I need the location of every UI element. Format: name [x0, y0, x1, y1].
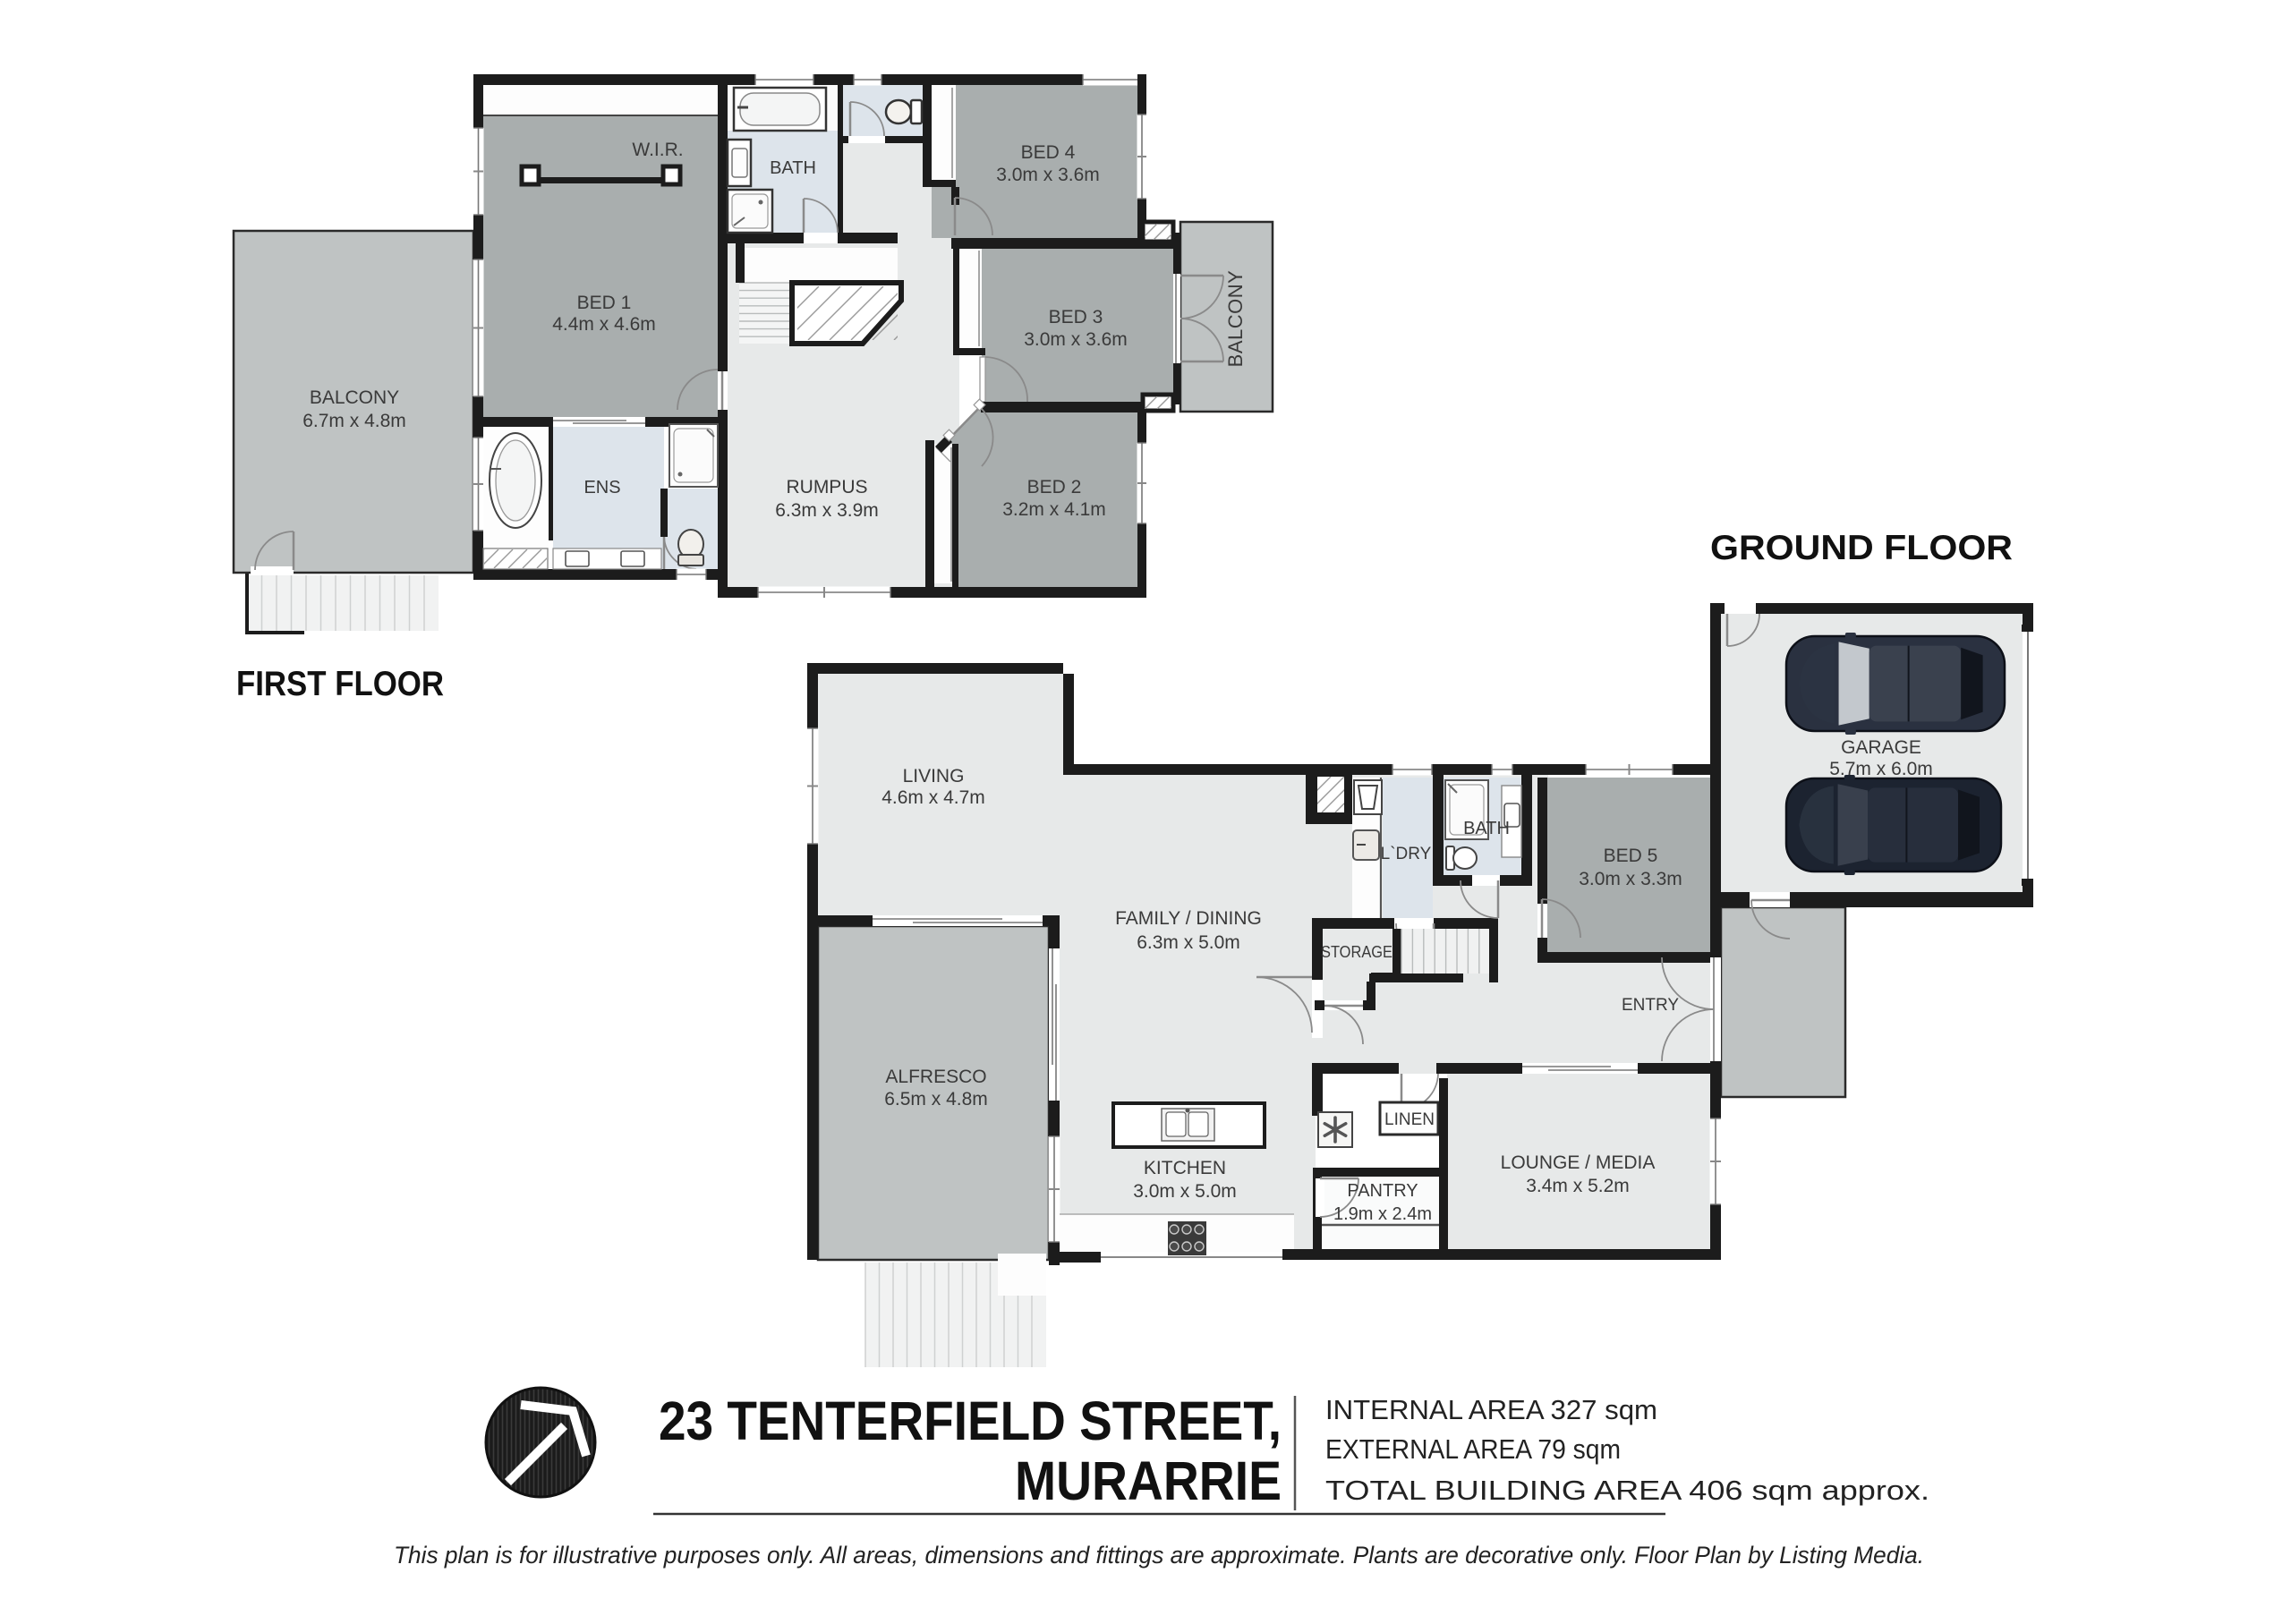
svg-text:5.7m x 6.0m: 5.7m x 6.0m [1829, 759, 1933, 779]
svg-text:BALCONY: BALCONY [1224, 270, 1247, 368]
svg-text:3.2m x 4.1m: 3.2m x 4.1m [1002, 499, 1106, 520]
svg-text:6.7m x 4.8m: 6.7m x 4.8m [302, 411, 406, 431]
svg-text:BATH: BATH [770, 158, 816, 178]
svg-text:6.3m x 5.0m: 6.3m x 5.0m [1137, 932, 1240, 953]
svg-text:This plan is for illustrative: This plan is for illustrative purposes o… [394, 1542, 1924, 1569]
svg-text:TOTAL BUILDING AREA 406 sqm ap: TOTAL BUILDING AREA 406 sqm approx. [1325, 1475, 1929, 1506]
svg-text:LIVING: LIVING [903, 766, 965, 786]
svg-text:6.3m x 3.9m: 6.3m x 3.9m [775, 500, 879, 521]
svg-text:MURARRIE: MURARRIE [1015, 1450, 1282, 1511]
svg-text:GARAGE: GARAGE [1841, 737, 1921, 758]
svg-text:3.0m x 3.3m: 3.0m x 3.3m [1579, 869, 1682, 889]
svg-text:PANTRY: PANTRY [1347, 1181, 1418, 1201]
svg-text:BED 3: BED 3 [1049, 307, 1103, 327]
svg-text:ALFRESCO: ALFRESCO [885, 1067, 986, 1087]
svg-text:GROUND FLOOR: GROUND FLOOR [1710, 529, 2013, 567]
svg-text:BED 2: BED 2 [1027, 477, 1082, 497]
svg-text:INTERNAL AREA 327 sqm: INTERNAL AREA 327 sqm [1325, 1394, 1657, 1425]
svg-text:BED 4: BED 4 [1021, 142, 1076, 163]
svg-text:ENS: ENS [583, 478, 620, 497]
svg-text:LOUNGE / MEDIA: LOUNGE / MEDIA [1501, 1152, 1656, 1173]
svg-text:23 TENTERFIELD STREET,: 23 TENTERFIELD STREET, [659, 1390, 1282, 1451]
svg-text:3.0m x 3.6m: 3.0m x 3.6m [1024, 329, 1128, 350]
svg-text:FIRST FLOOR: FIRST FLOOR [236, 665, 444, 703]
svg-text:BED 5: BED 5 [1604, 846, 1658, 866]
svg-text:EXTERNAL AREA 79 sqm: EXTERNAL AREA 79 sqm [1325, 1433, 1621, 1465]
svg-text:ENTRY: ENTRY [1622, 996, 1679, 1015]
svg-text:3.4m x 5.2m: 3.4m x 5.2m [1526, 1176, 1630, 1196]
svg-text:W.I.R.: W.I.R. [632, 140, 683, 160]
svg-text:3.0m x 5.0m: 3.0m x 5.0m [1133, 1181, 1237, 1202]
svg-text:BATH: BATH [1463, 819, 1510, 838]
svg-text:L`DRY: L`DRY [1381, 845, 1432, 863]
svg-text:1.9m x 2.4m: 1.9m x 2.4m [1333, 1204, 1432, 1224]
svg-text:6.5m x 4.8m: 6.5m x 4.8m [884, 1089, 988, 1110]
svg-text:RUMPUS: RUMPUS [786, 477, 867, 497]
svg-text:LINEN: LINEN [1384, 1110, 1435, 1129]
svg-text:KITCHEN: KITCHEN [1144, 1158, 1226, 1178]
svg-text:FAMILY / DINING: FAMILY / DINING [1115, 908, 1262, 929]
svg-text:BALCONY: BALCONY [310, 387, 399, 408]
svg-text:STORAGE: STORAGE [1321, 942, 1392, 961]
svg-text:4.4m x 4.6m: 4.4m x 4.6m [552, 314, 656, 335]
svg-text:4.6m x 4.7m: 4.6m x 4.7m [881, 787, 985, 808]
svg-text:3.0m x 3.6m: 3.0m x 3.6m [996, 165, 1100, 185]
svg-text:BED 1: BED 1 [577, 293, 632, 313]
